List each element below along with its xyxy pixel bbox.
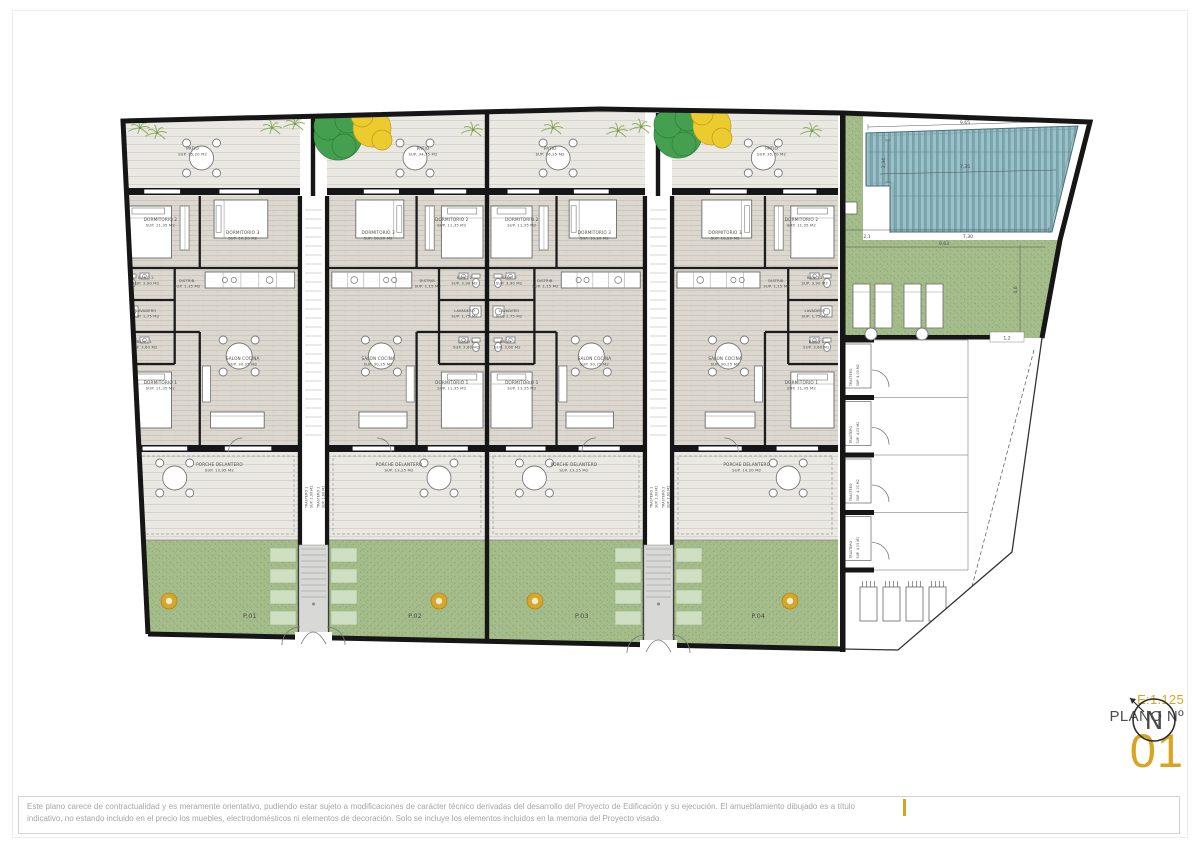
disclaimer-text: Este plano carece de contractualidad y e… [27, 801, 855, 825]
stepping-pad [615, 548, 641, 562]
room-label: BAÑO 1 [809, 339, 825, 344]
room-sup-label: SUP. 11,35 M2 [507, 223, 536, 228]
table-icon [427, 466, 451, 490]
garden-light-center [166, 598, 172, 604]
svg-text:N: N [1145, 706, 1164, 735]
room-sup-label: SUP. 10,20 M2 [228, 236, 257, 241]
room-sup-label: SUP. 3,90 M2 [133, 281, 160, 286]
lounger-icon [875, 284, 892, 328]
chair-icon [799, 489, 807, 497]
palm-trunk [472, 129, 474, 131]
room-sup-label: SUP. 1,15 M2 [415, 284, 442, 289]
room-label: DORMITORIO 1 [144, 380, 178, 385]
chair-icon [569, 139, 577, 147]
wardrobe-icon [425, 206, 434, 250]
chair-icon [799, 459, 807, 467]
sofa-icon [705, 412, 755, 428]
room-sup-label: SUP. 36,25 M2 [536, 152, 565, 157]
table-icon [776, 466, 800, 490]
tree-canopy-yellow [691, 103, 713, 125]
window [579, 447, 620, 451]
strip-label: TRASTERO 1 [305, 487, 309, 509]
plot-label: P.04 [751, 612, 765, 620]
room-label: BAÑO 2 [807, 275, 823, 280]
room-sup-label: SUP. 11,35 M2 [787, 223, 816, 228]
chair-icon [361, 336, 369, 344]
disclaimer-box: Este plano carece de contractualidad y e… [18, 796, 1180, 834]
window [508, 190, 540, 194]
lounger-icon [904, 284, 921, 328]
room-label: DISTRIB. [537, 279, 554, 283]
window [783, 190, 816, 194]
chair-icon [186, 459, 194, 467]
chair-icon [186, 489, 194, 497]
chair-icon [393, 368, 401, 376]
room-label: DORMITORIO 1 [505, 380, 539, 385]
chair-icon [213, 169, 221, 177]
room-label: DISTRIB. [768, 279, 785, 283]
window [699, 447, 742, 451]
room-sup-label: SUP. 30,25 M2 [580, 362, 609, 367]
window [364, 190, 399, 194]
room-sup-label: SUP. 1,75 M2 [451, 314, 478, 319]
room-label: PORCHE DELANTERO [196, 462, 243, 467]
stepping-pad [270, 590, 296, 604]
tv-unit-icon [406, 366, 414, 402]
pillow-icon [216, 206, 221, 233]
room-sup-label: SUP. 11,35 M2 [507, 386, 536, 391]
tv-unit-icon [754, 366, 762, 402]
stepping-pad [615, 590, 641, 604]
dim-lawn-height: 4,6 [1013, 286, 1019, 293]
room-sup-label: SUP. 30,25 M2 [364, 362, 393, 367]
dim-deck-left: 2,1 [863, 234, 870, 240]
chair-icon [183, 169, 191, 177]
room-sup-label: SUP. 35,70 M2 [757, 152, 786, 157]
stepping-pad [615, 611, 641, 625]
room-label: SALON COCINA [226, 356, 260, 361]
chair-icon [251, 336, 259, 344]
dim-pool-bottom: 7,30 [963, 234, 973, 240]
room-sup-label: SUP. 1,15 M2 [174, 284, 201, 289]
chair-icon [708, 336, 716, 344]
pool-equipment-box [845, 202, 857, 214]
room-label: SALON COCINA [708, 356, 742, 361]
room-label: PATIO [186, 146, 199, 151]
chair-icon [420, 489, 428, 497]
trastero-sup-label: SUP. 4,05 M2 [856, 479, 860, 501]
room-label: BAÑO 1 [458, 339, 474, 344]
room-sup-label: SUP. 11,35 M2 [437, 223, 466, 228]
pillow-icon [745, 206, 750, 233]
strip-sup-label: SUP. 2,60 M2 [322, 486, 326, 509]
window [506, 447, 545, 451]
room-sup-label: SUP. 3,90 M2 [802, 281, 829, 286]
plan-sheet: { "sheet": { "disclaimer": "Este plano c… [0, 0, 1200, 848]
window [777, 447, 819, 451]
room-sup-label: SUP. 10,20 M2 [364, 236, 393, 241]
chair-icon [744, 169, 752, 177]
room-sup-label: SUP. 35,20 M2 [178, 152, 207, 157]
north-arrow: N [1124, 690, 1180, 746]
palm-trunk [294, 123, 296, 125]
room-label: BAÑO 2 [138, 275, 154, 280]
room-sup-label: SUP. 13,25 M2 [384, 468, 413, 473]
chair-icon [539, 169, 547, 177]
pool-side-garden [845, 113, 863, 240]
chair-icon [515, 459, 523, 467]
chair-icon [396, 139, 404, 147]
palm-trunk [811, 130, 813, 132]
trastero-divider-wall [843, 568, 874, 573]
room-sup-label: SUP. 30,25 M2 [711, 362, 740, 367]
stepping-pad [615, 569, 641, 583]
stepping-pad [676, 569, 702, 583]
bike-rack-icon [906, 587, 923, 621]
stepping-pad [331, 569, 357, 583]
dim-pool-left: 2,34 [881, 158, 887, 168]
trastero-divider-wall [843, 510, 874, 515]
room-sup-label: SUP. 3,90 M2 [496, 281, 523, 286]
room-sup-label: SUP. 1,75 M2 [133, 314, 160, 319]
room-label: DORMITORIO 3 [226, 230, 260, 235]
room-sup-label: SUP. 34,75 M2 [408, 152, 437, 157]
bike-rack-icon [883, 587, 900, 621]
room-label: DISTRIB. [179, 279, 196, 283]
room-sup-label: SUP. 13,95 M2 [205, 468, 234, 473]
dim-pool-mid: 7,35 [960, 164, 970, 170]
chair-icon [545, 489, 553, 497]
kitchen-counter-icon [205, 272, 295, 288]
room-label: DISTRIB. [419, 279, 436, 283]
stepping-pad [331, 548, 357, 562]
trastero-divider-wall [843, 395, 874, 400]
trastero-sup-label: SUP. 4,05 M2 [856, 422, 860, 444]
room-label: DORMITORIO 2 [435, 217, 469, 222]
room-label: LAVADERO [136, 309, 157, 313]
chair-icon [393, 336, 401, 344]
room-label: DORMITORIO 3 [578, 230, 612, 235]
chair-icon [571, 368, 579, 376]
tree-canopy-green [332, 134, 356, 158]
chair-icon [450, 489, 458, 497]
room-sup-label: SUP. 3,60 M2 [453, 345, 480, 350]
chair-icon [603, 336, 611, 344]
trastero-sup-label: SUP. 4,05 M2 [856, 537, 860, 559]
chair-icon [571, 336, 579, 344]
strip-sup-label: SUP. 2,60 M2 [667, 486, 671, 509]
garden-light-center [787, 598, 793, 604]
chair-icon [251, 368, 259, 376]
dim-stall: 1,2 [1003, 336, 1010, 342]
chair-icon [396, 169, 404, 177]
room-label: PORCHE DELANTERO [376, 462, 423, 467]
tv-unit-icon [559, 366, 567, 402]
wardrobe-icon [774, 206, 783, 250]
room-label: BAÑO 2 [501, 275, 517, 280]
site-area: 9,65 7,35 2,34 2,1 7,30 9,63 4,6 1,2 P.0… [121, 103, 1090, 655]
window [434, 190, 466, 194]
chair-icon [740, 368, 748, 376]
toilet-tank [823, 274, 831, 278]
titleblock: N E:1.125 PLANO Nº 01 [1064, 690, 1184, 774]
palm-trunk [617, 130, 619, 132]
stepping-pad [676, 590, 702, 604]
window [574, 190, 609, 194]
wardrobe-icon [180, 206, 189, 250]
room-sup-label: SUP. 1,75 M2 [496, 314, 523, 319]
room-label: BAÑO 1 [500, 339, 516, 344]
room-label: LAVADERO [804, 309, 825, 313]
palm-trunk [552, 127, 554, 129]
chair-icon [769, 459, 777, 467]
tree-canopy-yellow [712, 128, 732, 148]
room-sup-label: SUP. 14,20 M2 [732, 468, 761, 473]
chair-icon [603, 368, 611, 376]
window [219, 190, 258, 194]
room-label: DORMITORIO 1 [435, 380, 469, 385]
chair-icon [515, 489, 523, 497]
chair-icon [156, 489, 164, 497]
room-sup-label: SUP. 1,15 M2 [763, 284, 790, 289]
toilet-tank [472, 274, 480, 278]
chair-icon [361, 368, 369, 376]
trastero-label: TRASTERO [849, 425, 853, 444]
table-icon [522, 466, 546, 490]
stepping-pad [270, 569, 296, 583]
bike-rack-icon [860, 587, 877, 621]
lounger-icon [926, 284, 943, 328]
chair-icon [769, 489, 777, 497]
floor-plan: 9,65 7,35 2,34 2,1 7,30 9,63 4,6 1,2 P.0… [0, 0, 1200, 848]
window [353, 447, 395, 451]
room-label: SALON COCINA [578, 356, 612, 361]
room-label: DORMITORIO 1 [785, 380, 819, 385]
chair-icon [156, 459, 164, 467]
chair-icon [744, 139, 752, 147]
room-label: PATIO [544, 146, 557, 151]
room-label: BAÑO 2 [457, 275, 473, 280]
garden-light-center [532, 598, 538, 604]
kitchen-counter-icon [677, 272, 760, 288]
pillow-icon [132, 208, 165, 214]
room-label: PATIO [765, 146, 778, 151]
trastero-sup-label: SUP. 4,05 M2 [856, 364, 860, 386]
stepping-pad [270, 611, 296, 625]
room-sup-label: SUP. 3,60 M2 [494, 345, 521, 350]
room-label: PATIO [417, 146, 430, 151]
side-table-icon [916, 328, 928, 340]
pillow-icon [397, 206, 402, 233]
room-sup-label: SUP. 11,35 M2 [787, 386, 816, 391]
room-sup-label: SUP. 1,15 M2 [532, 284, 559, 289]
dim-lawn-width: 9,63 [939, 241, 949, 247]
side-table-icon [865, 328, 877, 340]
strip-label: TRASTERO 2 [662, 487, 666, 509]
strip-label: TRASTERO 2 [317, 487, 321, 509]
room-sup-label: SUP. 3,90 M2 [451, 281, 478, 286]
room-label: DORMITORIO 2 [144, 217, 178, 222]
fence-gap [640, 640, 677, 650]
central-party-wall [485, 113, 489, 651]
wardrobe-icon [539, 206, 548, 250]
pillow-icon [448, 208, 477, 214]
chair-icon [219, 368, 227, 376]
room-label: DORMITORIO 2 [505, 217, 539, 222]
room-label: DORMITORIO 3 [362, 230, 396, 235]
stepping-pad [676, 548, 702, 562]
strip-sup-label: SUP. 2,00 M2 [310, 486, 314, 509]
window [142, 447, 187, 451]
chair-icon [213, 139, 221, 147]
lounger-icon [853, 284, 870, 328]
table-icon [163, 466, 187, 490]
plot-label: P.02 [408, 612, 422, 620]
pillow-icon [571, 206, 576, 233]
strip-label: TRASTERO 1 [650, 487, 654, 509]
room-sup-label: SUP. 11,35 M2 [437, 386, 466, 391]
trastero-label: TRASTERO [849, 368, 853, 387]
plot-label: P.03 [575, 612, 589, 620]
kitchen-counter-icon [332, 272, 412, 288]
strip-sup-label: SUP. 2,00 M2 [655, 486, 659, 509]
room-label: SALON COCINA [361, 356, 395, 361]
tv-unit-icon [202, 366, 210, 402]
room-sup-label: SUP. 13,25 M2 [559, 468, 588, 473]
pillow-icon [497, 208, 526, 214]
room-sup-label: SUP. 1,75 M2 [802, 314, 829, 319]
room-label: LAVADERO [454, 309, 475, 313]
kitchen-counter-icon [561, 272, 640, 288]
chair-icon [740, 336, 748, 344]
room-sup-label: SUP. 11,35 M2 [146, 386, 175, 391]
dim-pool-top: 9,65 [960, 120, 970, 126]
room-label: LAVADERO [499, 309, 520, 313]
building-right-wall [840, 113, 846, 652]
tree-canopy-green [672, 132, 696, 156]
trastero-label: TRASTERO [849, 483, 853, 502]
trastero-divider-wall [843, 453, 874, 458]
sofa-icon [566, 412, 613, 428]
trastero-label: TRASTERO [849, 540, 853, 559]
garden-light-center [436, 598, 442, 604]
window [710, 190, 747, 194]
room-sup-label: SUP. 3,60 M2 [803, 345, 830, 350]
room-label: PORCHE DELANTERO [551, 462, 598, 467]
chair-icon [426, 169, 434, 177]
window [428, 447, 468, 451]
room-sup-label: SUP. 11,35 M2 [146, 223, 175, 228]
chair-icon [450, 459, 458, 467]
chair-icon [774, 169, 782, 177]
stepping-pad [331, 590, 357, 604]
pillow-icon [797, 208, 827, 214]
stepping-pad [270, 548, 296, 562]
sofa-icon [359, 412, 407, 428]
sofa-icon [211, 412, 265, 428]
stepping-pad [331, 611, 357, 625]
tree-canopy-yellow [372, 130, 392, 150]
room-sup-label: SUP. 10,20 M2 [711, 236, 740, 241]
gold-marker [903, 799, 906, 816]
path-marker [312, 603, 315, 606]
chair-icon [569, 169, 577, 177]
stepping-pad [676, 611, 702, 625]
path-marker [657, 603, 660, 606]
plot-label: P.01 [243, 612, 257, 620]
window [144, 190, 180, 194]
fence-gap [295, 632, 332, 642]
palm-trunk [139, 127, 141, 129]
room-sup-label: SUP. 10,20 M2 [580, 236, 609, 241]
swimming-pool [866, 126, 1078, 232]
room-sup-label: SUP. 30,25 M2 [228, 362, 257, 367]
room-label: DORMITORIO 2 [785, 217, 819, 222]
chair-icon [708, 368, 716, 376]
chair-icon [219, 336, 227, 344]
room-label: BAÑO 1 [136, 339, 152, 344]
palm-trunk [640, 126, 642, 128]
palm-trunk [156, 132, 158, 134]
room-label: DORMITORIO 3 [708, 230, 742, 235]
palm-trunk [271, 127, 273, 129]
window [225, 447, 272, 451]
room-label: PORCHE DELANTERO [723, 462, 770, 467]
